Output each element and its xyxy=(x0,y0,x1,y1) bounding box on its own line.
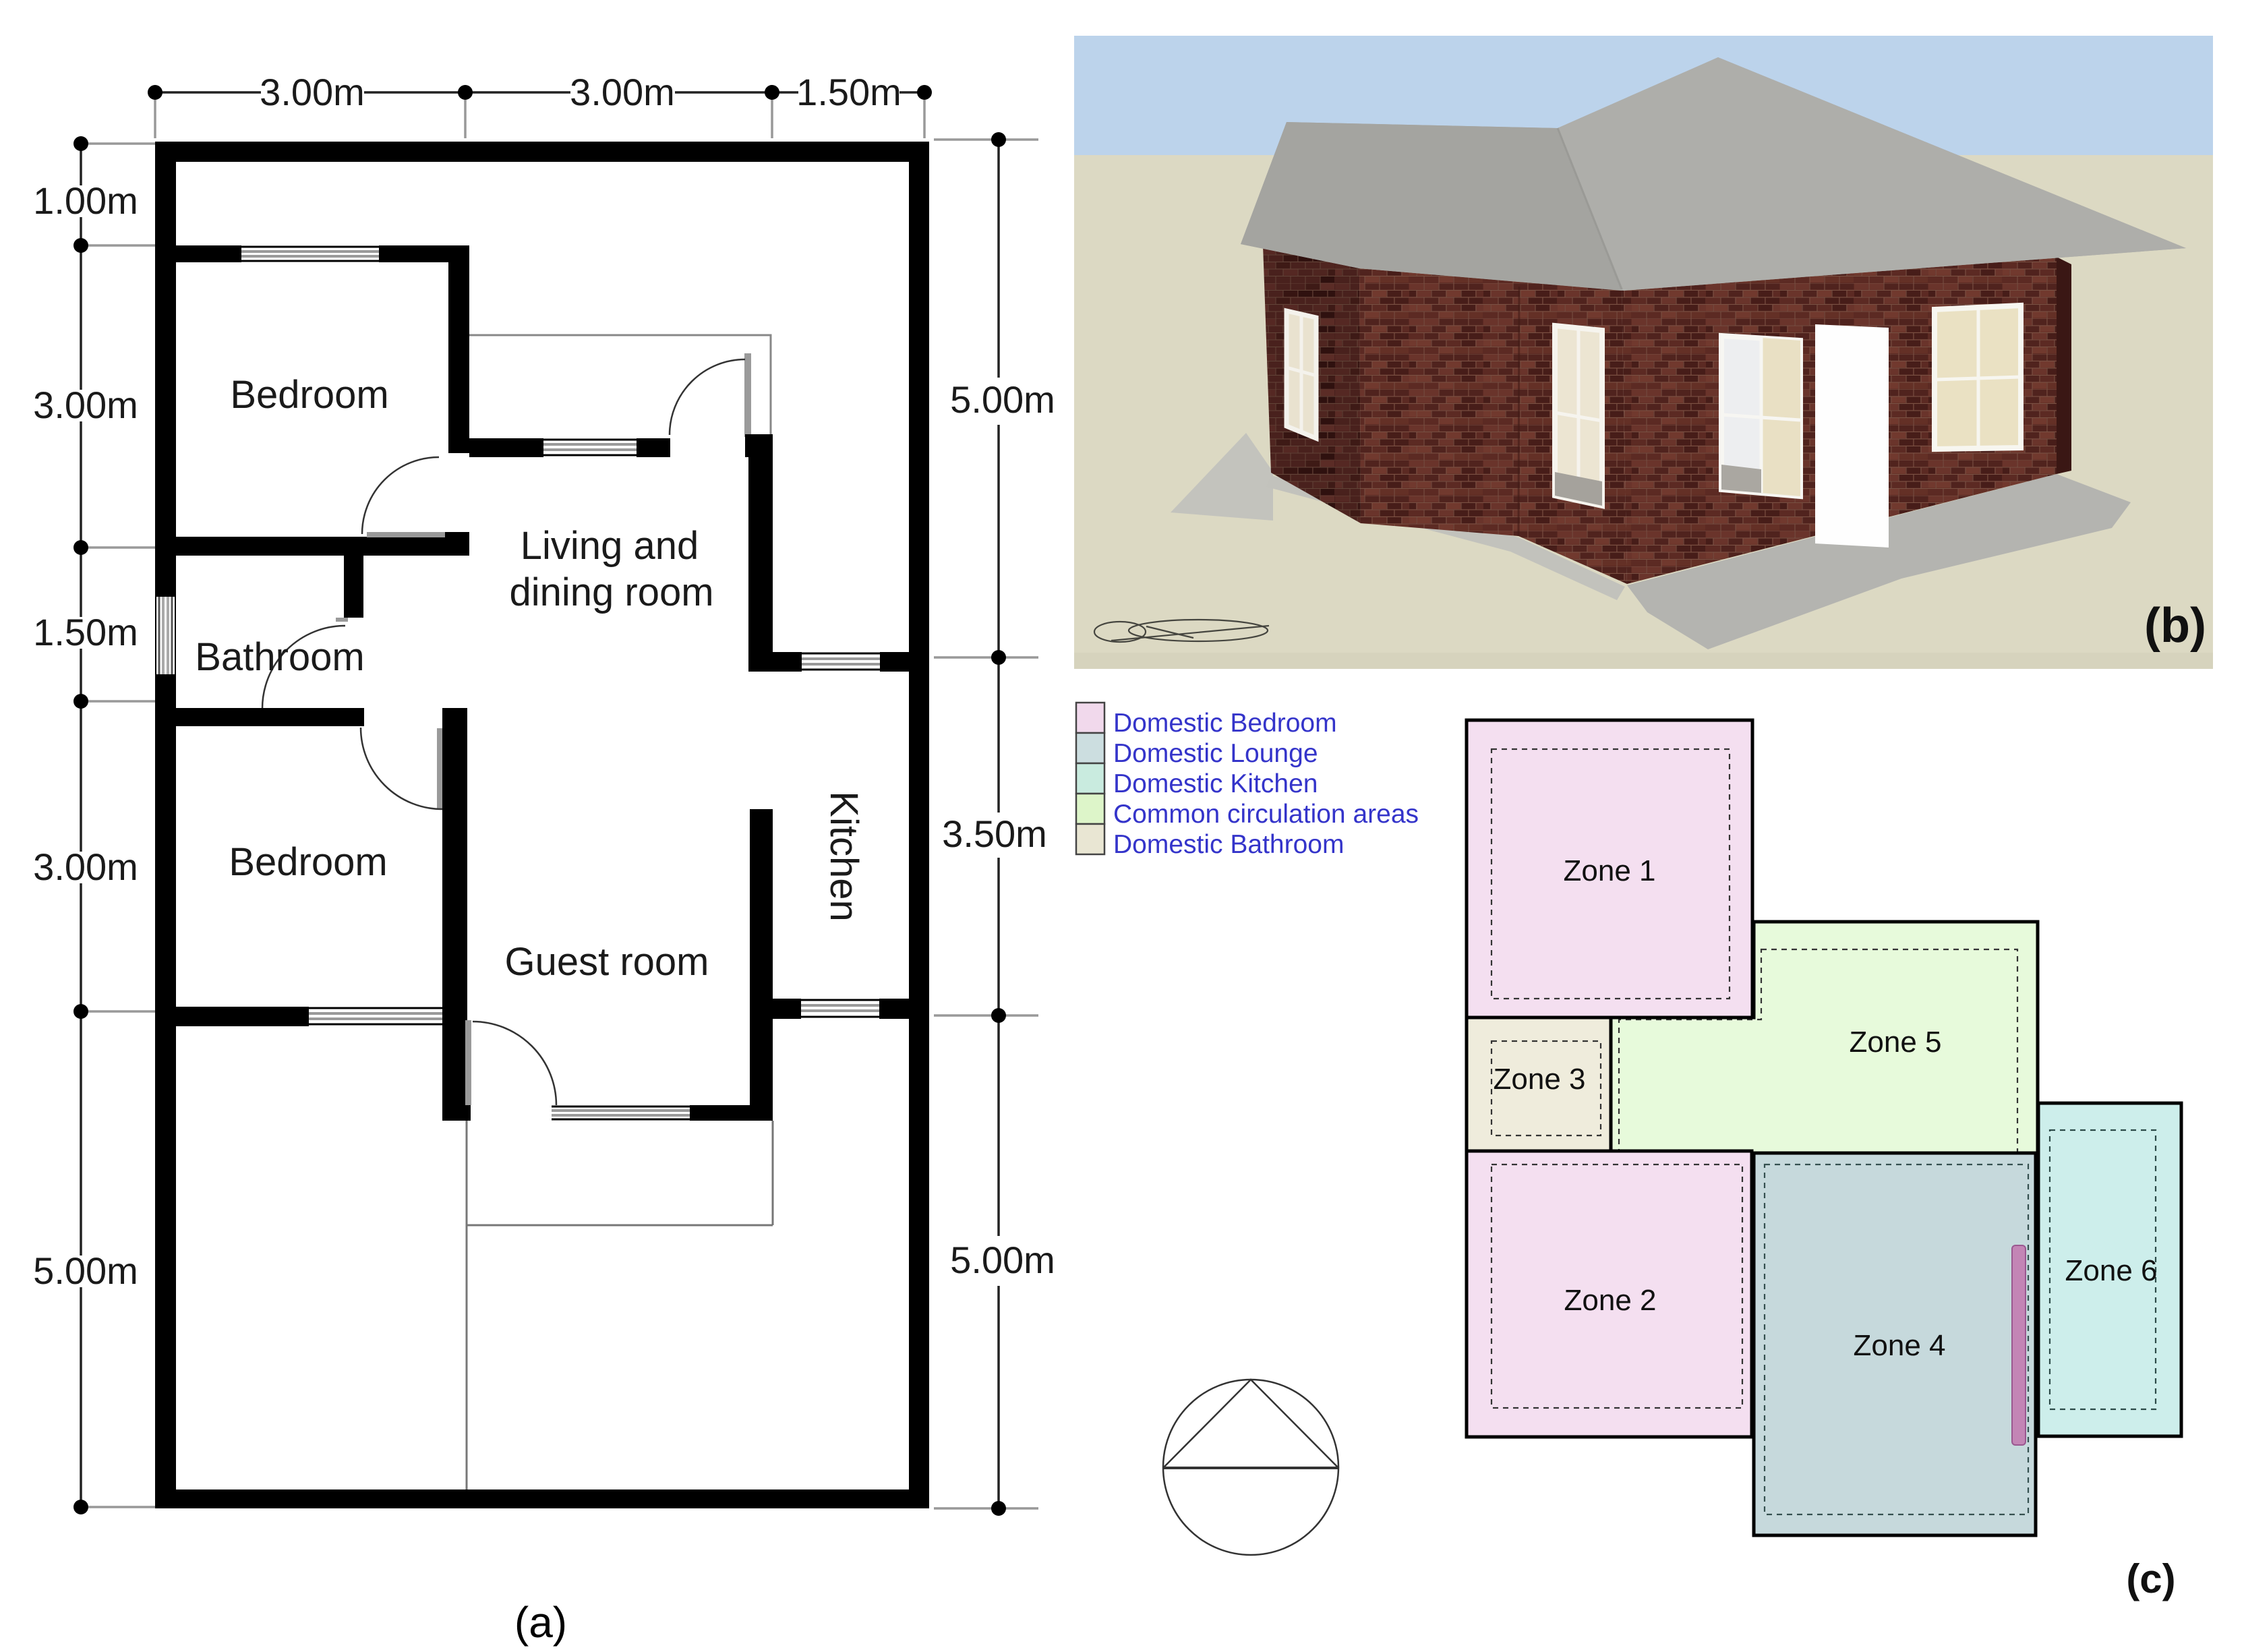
svg-text:Zone 1: Zone 1 xyxy=(1564,854,1656,887)
svg-text:Bedroom: Bedroom xyxy=(230,373,388,417)
svg-text:(a): (a) xyxy=(514,1598,567,1647)
svg-text:1.50m: 1.50m xyxy=(796,71,902,113)
svg-text:Guest room: Guest room xyxy=(505,940,709,984)
svg-text:Common circulation areas: Common circulation areas xyxy=(1113,800,1419,829)
svg-text:Kitchen: Kitchen xyxy=(822,791,866,921)
svg-text:Domestic Lounge: Domestic Lounge xyxy=(1113,739,1318,768)
svg-text:(c): (c) xyxy=(2126,1556,2175,1601)
svg-text:Zone 6: Zone 6 xyxy=(2065,1254,2158,1287)
svg-text:3.00m: 3.00m xyxy=(33,384,138,426)
svg-text:Zone 5: Zone 5 xyxy=(1850,1026,1942,1059)
svg-text:1.00m: 1.00m xyxy=(33,179,138,222)
svg-text:3.00m: 3.00m xyxy=(570,71,675,113)
svg-text:dining room: dining room xyxy=(509,570,713,614)
svg-text:5.00m: 5.00m xyxy=(950,378,1055,421)
svg-text:3.00m: 3.00m xyxy=(33,846,138,888)
svg-text:3.00m: 3.00m xyxy=(260,71,365,113)
svg-text:Living and: Living and xyxy=(521,524,699,568)
svg-text:Domestic Bathroom: Domestic Bathroom xyxy=(1113,830,1344,859)
svg-text:1.50m: 1.50m xyxy=(33,611,138,653)
svg-text:Bedroom: Bedroom xyxy=(229,840,387,884)
svg-text:5.00m: 5.00m xyxy=(950,1239,1055,1281)
svg-text:Zone 3: Zone 3 xyxy=(1494,1063,1586,1096)
svg-text:Bathroom: Bathroom xyxy=(195,635,364,679)
svg-text:Domestic Bedroom: Domestic Bedroom xyxy=(1113,709,1337,738)
svg-text:3.50m: 3.50m xyxy=(942,813,1047,855)
svg-text:Domestic Kitchen: Domestic Kitchen xyxy=(1113,769,1318,798)
svg-text:Zone 2: Zone 2 xyxy=(1564,1284,1657,1317)
svg-text:Zone 4: Zone 4 xyxy=(1854,1329,1946,1362)
svg-text:5.00m: 5.00m xyxy=(33,1249,138,1292)
svg-text:(b): (b) xyxy=(2144,599,2206,653)
